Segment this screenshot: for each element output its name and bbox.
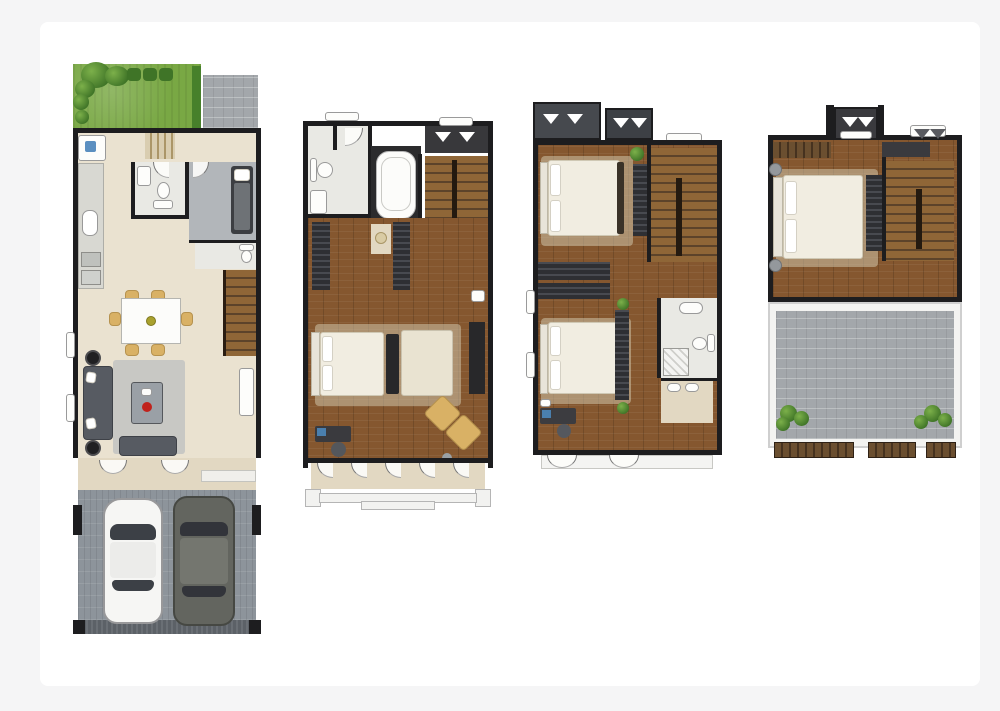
toilet-bowl-icon [317,162,333,178]
wall [647,145,651,262]
bed-headboard [311,332,320,396]
wall [256,128,261,458]
garage-post [249,620,261,634]
desk-chair [331,442,346,457]
desk-chair [557,424,571,438]
basin-icon [679,302,703,314]
side-table [85,440,101,456]
garage-post [73,620,85,634]
stair-rail [916,189,922,249]
toilet-tank [310,158,317,182]
bed-headboard [773,177,783,257]
wardrobe [312,222,330,290]
plant-icon [617,402,629,414]
sofa-chaise [119,436,177,456]
toilet-bowl-icon [692,337,707,350]
table-dish [141,388,152,396]
window [439,117,473,126]
bathtub-basin [381,157,411,211]
desk-item [317,428,326,436]
ac-unit [471,290,485,302]
wardrobe [615,310,629,400]
bush-icon [143,68,157,81]
lamp-icon [375,232,387,244]
planter-box [868,442,916,458]
bush-icon [159,68,173,81]
side-patio [203,75,258,128]
suv-roof [180,538,228,584]
staircase [223,270,256,356]
basin-icon [137,166,151,186]
wall [957,135,962,305]
wall [131,215,189,219]
tv-console [469,322,485,394]
wall [717,140,722,455]
staircase [651,148,717,262]
shrub-icon [776,417,790,431]
toilet-tank [239,244,254,251]
wardrobe [882,142,930,157]
bed-blanket [234,183,250,230]
plan-ground-floor [73,62,261,640]
entry-steps [145,133,175,159]
wall [333,126,337,150]
closet-strip [773,142,831,158]
door-sill [840,131,872,139]
bed-pillow [322,336,333,362]
closet-door-icon [842,117,858,127]
bed-pillow [550,360,561,390]
plant-icon [617,298,629,310]
dining-chair [125,344,139,356]
throw-pillow [85,417,97,430]
wardrobe [633,164,647,236]
shrub-icon [794,411,809,426]
bush-icon [127,68,141,81]
dining-chair [109,312,121,326]
plan-third-floor [533,102,722,482]
bed-pillow [322,365,333,391]
plan-roof-floor [768,105,962,477]
car-roof [110,542,156,578]
plant-icon [630,147,644,161]
tree-icon [105,66,129,86]
basin-icon [685,383,699,392]
bay-window [66,332,75,358]
bed-headboard [540,324,548,394]
stair-rail [676,178,682,256]
suv-windshield [180,522,228,536]
closet-door-icon [858,117,874,127]
walkway [201,470,256,482]
bush-icon [75,110,89,124]
bed-pillow [550,326,561,356]
bush-icon [73,94,89,110]
closet-door-icon [930,129,946,139]
window [325,112,359,121]
red-bowl [142,402,152,412]
car-rear-glass [112,580,154,591]
bed-pillow [550,200,561,232]
parapet-step [361,501,435,510]
hedge [192,66,201,128]
toilet-tank [153,200,173,209]
lamp-icon [769,163,782,176]
toilet-bowl-icon [157,182,170,199]
lamp-icon [769,259,782,272]
closet-door-icon [543,114,559,124]
floorplan-sheet [40,22,980,686]
closet-door-icon [459,132,475,142]
car-windshield [110,524,156,540]
chaise [401,330,453,396]
shrub-icon [914,415,928,429]
desk-papers [540,399,551,407]
cabinet [239,368,254,416]
bed-pillow [234,169,250,181]
wardrobe [866,175,882,251]
bed-pillow [785,181,797,215]
dining-chair [181,312,193,326]
throw-pillow [85,371,96,383]
wall [882,157,886,261]
bay-window [66,394,75,422]
bed-pillow [550,164,561,196]
bay-window [526,290,535,314]
bed-pillow [785,219,797,253]
closet-door-icon [567,114,583,124]
toilet-tank [707,334,715,352]
planter-box [926,442,956,458]
wardrobe [393,222,410,290]
parapet-column [475,489,491,507]
fridge-icon [81,270,101,285]
toilet-bowl-icon [241,250,252,263]
bay-window [526,352,535,378]
corridor-wardrobe [538,283,610,299]
washer-door [85,141,96,152]
table-centerpiece [146,316,156,326]
stair-rail [223,270,226,356]
dining-chair [151,344,165,356]
bed-runner [617,162,624,234]
garage-post [73,505,82,535]
basin-icon [310,190,327,214]
desk-item [542,410,551,418]
plan-second-floor [303,112,493,510]
closet-door-icon [631,118,647,128]
wall [488,121,493,468]
corridor-wardrobe [538,262,610,280]
stove-icon [81,252,101,267]
garage-post [252,505,261,535]
floorplan-image [0,0,1000,711]
shower-icon [663,348,689,376]
closet-door-icon [613,118,629,128]
bed-headboard [540,162,548,234]
planter-box [774,442,854,458]
closet-door-icon [435,132,451,142]
basin-icon [667,383,681,392]
side-table [85,350,101,366]
suv-rear-glass [182,586,226,597]
kitchen-sink-icon [82,210,98,236]
shrub-icon [938,413,952,427]
closet-door-icon [914,129,930,139]
foot-bench [386,334,399,394]
